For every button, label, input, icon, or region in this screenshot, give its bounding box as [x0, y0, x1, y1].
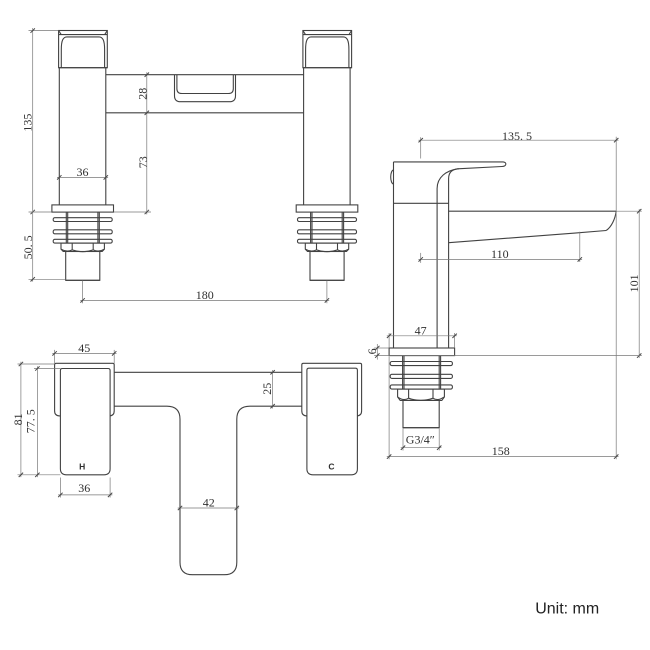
svg-text:73: 73: [136, 156, 150, 168]
svg-text:36: 36: [77, 165, 89, 179]
svg-text:G3/4″: G3/4″: [406, 433, 435, 447]
svg-text:H: H: [79, 461, 85, 471]
svg-text:180: 180: [196, 288, 214, 302]
svg-text:135: 135: [21, 114, 35, 132]
svg-text:6: 6: [365, 348, 379, 354]
svg-text:101: 101: [627, 274, 641, 292]
svg-text:25: 25: [260, 383, 274, 395]
svg-text:Unit: mm: Unit: mm: [535, 601, 599, 618]
svg-text:C: C: [328, 462, 334, 472]
svg-text:135. 5: 135. 5: [502, 129, 532, 143]
svg-text:158: 158: [492, 444, 510, 458]
svg-text:50. 5: 50. 5: [21, 235, 35, 259]
svg-text:42: 42: [203, 496, 215, 510]
svg-text:45: 45: [78, 341, 90, 355]
svg-text:110: 110: [491, 247, 509, 261]
svg-text:28: 28: [136, 88, 150, 100]
svg-text:36: 36: [78, 481, 90, 495]
svg-text:77. 5: 77. 5: [24, 409, 38, 433]
svg-text:47: 47: [415, 323, 427, 337]
